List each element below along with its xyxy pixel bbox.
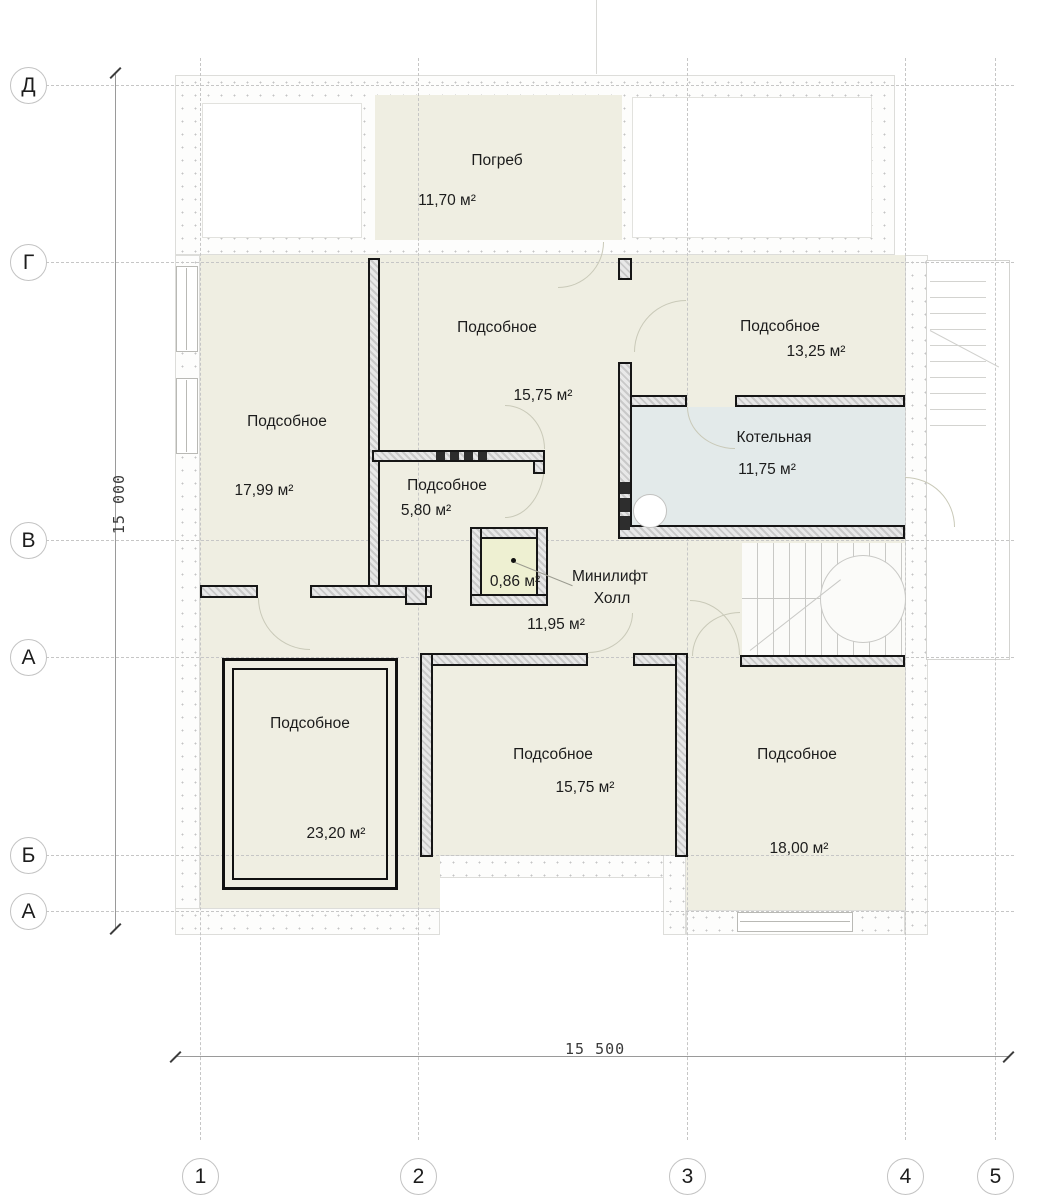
grid-line-row-b bbox=[46, 855, 1014, 856]
room-minilift-name: Минилифт bbox=[572, 568, 648, 586]
wall-hall-north-step bbox=[405, 585, 427, 605]
interior-stair-winder bbox=[820, 555, 906, 643]
room-580-area: 5,80 м² bbox=[401, 502, 451, 520]
wall-boiler-south bbox=[618, 525, 905, 539]
axis-bubble-row-a2: А bbox=[10, 893, 47, 930]
room-top-middle-area: 15,75 м² bbox=[514, 387, 573, 405]
unlabeled-room-top-right bbox=[632, 97, 872, 238]
room-top-right-area: 13,25 м² bbox=[787, 343, 846, 361]
axis-bubble-row-b: Б bbox=[10, 837, 47, 874]
wall-boiler-north-right bbox=[735, 395, 905, 407]
axis-bubble-row-g: Г bbox=[10, 244, 47, 281]
room-hall-name: Холл bbox=[594, 590, 631, 608]
room-bottom-left-name: Подсобное bbox=[270, 715, 350, 733]
room-pogreb-area: 11,70 м² bbox=[418, 192, 476, 210]
wall-bottom-mid-west bbox=[420, 653, 433, 857]
window-left-lower-mullion bbox=[186, 380, 187, 452]
room-left-name: Подсобное bbox=[247, 413, 327, 431]
room-bottom-right-area: 18,00 м² bbox=[770, 840, 829, 858]
vent-block-4 bbox=[478, 452, 487, 460]
axis-bubble-row-d: Д bbox=[10, 67, 47, 104]
room-580-name: Подсобное bbox=[407, 477, 487, 495]
vent-block-1 bbox=[436, 452, 445, 460]
boiler-tank-symbol bbox=[633, 494, 667, 528]
exterior-stair-treads bbox=[930, 266, 986, 434]
unlabeled-room-top-left bbox=[202, 103, 362, 238]
wall-boiler-north-stub-top bbox=[618, 258, 632, 280]
axis-bubble-col-4: 4 bbox=[887, 1158, 924, 1195]
wall-boiler-north-left bbox=[630, 395, 687, 407]
vent-block-3 bbox=[464, 452, 473, 460]
room-minilift-area: 0,86 м² bbox=[490, 573, 540, 591]
exterior-wall-bottom-middle bbox=[420, 855, 686, 878]
axis-bubble-row-a1: А bbox=[10, 639, 47, 676]
wall-left-separator bbox=[368, 258, 380, 588]
grid-line-row-a2 bbox=[46, 911, 1014, 912]
wall-bottom-divider bbox=[675, 653, 688, 857]
window-left-upper bbox=[176, 266, 198, 352]
axis-bubble-col-1: 1 bbox=[182, 1158, 219, 1195]
vent-block-2 bbox=[450, 452, 459, 460]
room-boiler-area: 11,75 м² bbox=[738, 461, 796, 479]
boiler-flue-2 bbox=[620, 498, 630, 512]
room-top-middle-name: Подсобное bbox=[457, 319, 537, 337]
room-hall-area: 11,95 м² bbox=[527, 616, 585, 634]
exterior-wall-bottom-left bbox=[175, 908, 440, 935]
wall-bottom-mid-north-left bbox=[428, 653, 588, 666]
room-bottom-right-name: Подсобное bbox=[757, 746, 837, 764]
window-bottom-right bbox=[737, 912, 853, 932]
exterior-wall-notch-side bbox=[663, 855, 686, 935]
dim-tick-left bbox=[169, 1051, 181, 1063]
boiler-flue-1 bbox=[620, 482, 630, 494]
room-pogreb-name: Погреб bbox=[471, 152, 522, 170]
construction-line bbox=[596, 0, 597, 74]
grid-line-row-g bbox=[46, 262, 1014, 263]
grid-line-row-d bbox=[46, 85, 1014, 86]
axis-bubble-col-5: 5 bbox=[977, 1158, 1014, 1195]
grid-line-col-5 bbox=[995, 58, 996, 1140]
wall-minilift-bottom bbox=[470, 594, 548, 606]
axis-bubble-row-v: В bbox=[10, 522, 47, 559]
grid-line-col-1 bbox=[200, 58, 201, 1140]
floor-fill-bottom-right bbox=[686, 855, 905, 910]
grid-line-col-3 bbox=[687, 58, 688, 1140]
wall-room-1800-north bbox=[740, 655, 905, 667]
room-top-right-name: Подсобное bbox=[740, 318, 820, 336]
room-bottom-middle-area: 15,75 м² bbox=[556, 779, 615, 797]
floor-plan-canvas: Погреб 11,70 м² Подсобное 15,75 м² Подсо… bbox=[0, 0, 1038, 1200]
dimension-horizontal-text: 15 500 bbox=[565, 1040, 625, 1058]
boiler-flue-3 bbox=[620, 516, 630, 530]
exterior-wall-left-band bbox=[175, 255, 200, 935]
window-left-lower bbox=[176, 378, 198, 454]
exterior-wall-right-band bbox=[905, 255, 928, 935]
window-bottom-right-mullion bbox=[740, 921, 850, 922]
minilift-point bbox=[511, 558, 516, 563]
window-left-upper-mullion bbox=[186, 268, 187, 350]
room-left-area: 17,99 м² bbox=[235, 482, 294, 500]
axis-bubble-col-2: 2 bbox=[400, 1158, 437, 1195]
dimension-vertical-text: 15 000 bbox=[110, 469, 128, 539]
axis-bubble-col-3: 3 bbox=[669, 1158, 706, 1195]
room-bottom-left-area: 23,20 м² bbox=[307, 825, 366, 843]
dim-tick-right bbox=[1002, 1051, 1014, 1063]
room-bottom-middle-name: Подсобное bbox=[513, 746, 593, 764]
room-boiler-name: Котельная bbox=[736, 429, 811, 447]
wall-hall-north-left bbox=[200, 585, 258, 598]
storage-enclosure-inner bbox=[232, 668, 388, 880]
wall-stub-under-top-middle bbox=[533, 460, 545, 474]
